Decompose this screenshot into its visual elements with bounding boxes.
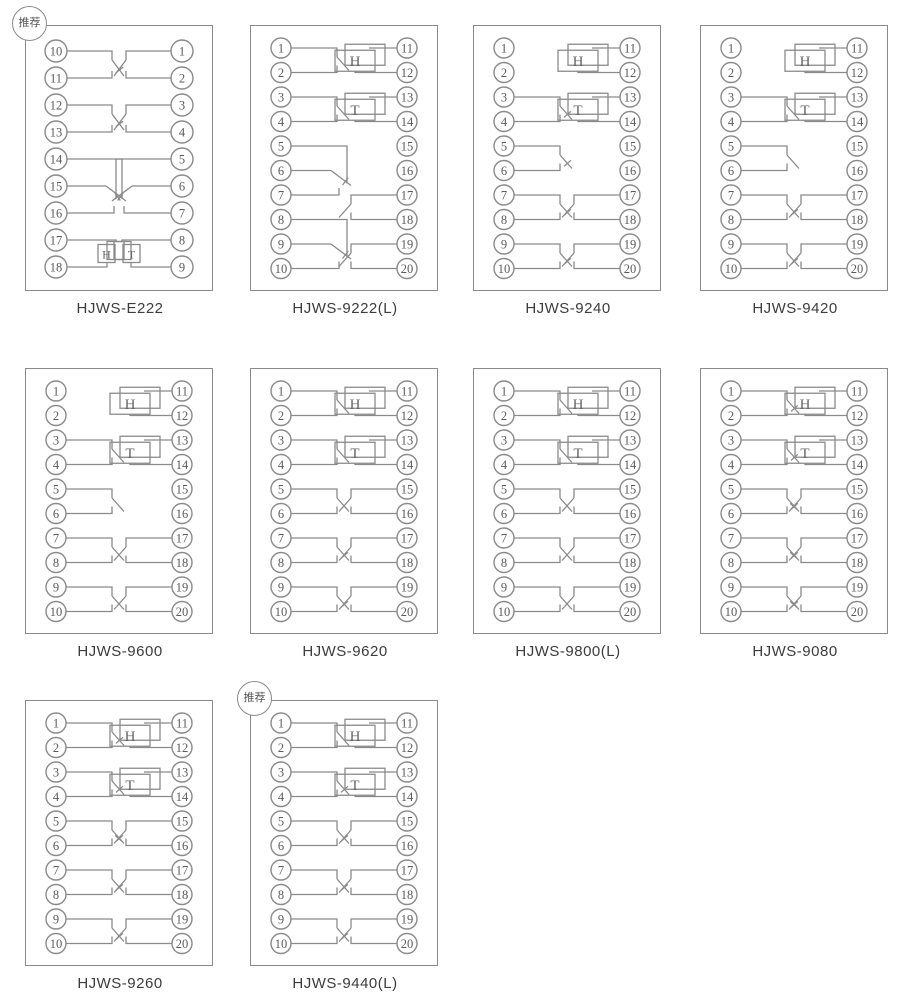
- terminals: 1234567891011121314151617181920: [46, 713, 192, 954]
- diagram-box: HT1234567891011121314151617181920: [25, 368, 213, 634]
- box-letter: T: [800, 446, 809, 462]
- terminal-5: 5: [721, 136, 741, 156]
- terminal-9: 9: [494, 577, 514, 597]
- svg-text:8: 8: [728, 213, 734, 227]
- terminal-4: 4: [721, 112, 741, 132]
- contact-no: [741, 146, 799, 171]
- svg-text:7: 7: [728, 189, 734, 203]
- terminals: 1234567891011121314151617181920: [494, 381, 640, 622]
- signal-box-h: H: [335, 44, 397, 72]
- terminal-3: 3: [271, 430, 291, 450]
- svg-text:20: 20: [624, 605, 637, 619]
- contact-no: [66, 489, 124, 514]
- svg-text:6: 6: [53, 839, 59, 853]
- svg-text:6: 6: [53, 507, 59, 521]
- terminal-15: 15: [620, 136, 640, 156]
- terminal-5: 5: [721, 479, 741, 499]
- contact-nc: [66, 723, 124, 748]
- terminals: 1234567891011121314151617181920: [271, 713, 417, 954]
- terminal-12: 12: [397, 63, 417, 83]
- terminal-4: 4: [494, 112, 514, 132]
- terminal-8: 8: [271, 210, 291, 230]
- svg-text:20: 20: [624, 262, 637, 276]
- terminal-10: 10: [271, 602, 291, 622]
- changeover-contact: [291, 220, 351, 269]
- terminal-20: 20: [172, 934, 192, 954]
- svg-text:20: 20: [401, 937, 414, 951]
- terminal-12: 12: [620, 63, 640, 83]
- svg-text:12: 12: [50, 99, 63, 113]
- recommended-badge: 推荐: [237, 681, 272, 716]
- svg-text:17: 17: [176, 532, 189, 546]
- terminal-14: 14: [397, 455, 417, 475]
- svg-text:8: 8: [728, 556, 734, 570]
- svg-text:8: 8: [53, 888, 59, 902]
- svg-text:3: 3: [501, 91, 507, 105]
- svg-text:15: 15: [624, 140, 637, 154]
- box-letter: H: [125, 729, 136, 745]
- terminal-14: 14: [397, 787, 417, 807]
- terminal-20: 20: [620, 259, 640, 279]
- svg-text:20: 20: [401, 605, 414, 619]
- relay-diagram-cell: HT1234567891011121314151617181920HJWS-92…: [25, 700, 215, 992]
- svg-text:9: 9: [53, 581, 59, 595]
- wiring-diagram: HT1234567891011121314151617181920: [474, 369, 660, 633]
- terminal-3: 3: [494, 430, 514, 450]
- terminal-8: 8: [271, 553, 291, 573]
- diagram-title: HJWS-9240: [473, 300, 663, 317]
- svg-text:20: 20: [176, 605, 189, 619]
- terminal-11: 11: [620, 38, 640, 58]
- signal-box-t: T: [785, 436, 847, 464]
- terminal-3: 3: [46, 430, 66, 450]
- terminal-6: 6: [721, 504, 741, 524]
- contact-nc: [741, 440, 799, 465]
- relay-diagram-cell: 推荐HT1234567891011121314151617181920HJWS-…: [250, 700, 440, 992]
- signal-box-h: H: [785, 387, 847, 415]
- diagram-box: HT1234567891011121314151617181920: [700, 368, 888, 634]
- terminal-11: 11: [172, 381, 192, 401]
- terminal-15: 15: [847, 479, 867, 499]
- terminal-1: 1: [46, 713, 66, 733]
- terminal-18: 18: [397, 210, 417, 230]
- svg-text:16: 16: [401, 839, 414, 853]
- terminal-15: 15: [45, 175, 67, 197]
- svg-text:3: 3: [53, 434, 59, 448]
- svg-text:10: 10: [498, 262, 511, 276]
- svg-text:3: 3: [53, 766, 59, 780]
- svg-text:17: 17: [624, 189, 637, 203]
- signal-box-h: H: [558, 387, 620, 415]
- svg-text:18: 18: [851, 556, 864, 570]
- terminal-17: 17: [397, 185, 417, 205]
- signal-box-t: T: [110, 768, 172, 796]
- svg-text:1: 1: [53, 717, 59, 731]
- box-letter: H: [125, 397, 136, 413]
- terminal-11: 11: [172, 713, 192, 733]
- svg-text:3: 3: [278, 91, 284, 105]
- diagram-title: HJWS-9440(L): [250, 975, 440, 992]
- svg-text:20: 20: [176, 937, 189, 951]
- box-letter: T: [125, 778, 134, 794]
- svg-text:5: 5: [728, 483, 734, 497]
- svg-text:19: 19: [851, 238, 864, 252]
- terminal-8: 8: [494, 553, 514, 573]
- box-letter: H: [800, 397, 811, 413]
- terminal-20: 20: [847, 259, 867, 279]
- changeover-contact: [112, 159, 172, 213]
- terminal-10: 10: [46, 934, 66, 954]
- terminal-16: 16: [45, 202, 67, 224]
- signal-box-t: T: [558, 436, 620, 464]
- svg-text:18: 18: [401, 556, 414, 570]
- svg-text:19: 19: [176, 581, 189, 595]
- wiring-diagram: HT1234567891011121314151617181920: [251, 701, 437, 965]
- terminal-19: 19: [620, 234, 640, 254]
- terminal-17: 17: [847, 185, 867, 205]
- terminal-4: 4: [46, 787, 66, 807]
- terminal-9: 9: [721, 234, 741, 254]
- terminal-9: 9: [46, 577, 66, 597]
- svg-text:15: 15: [50, 180, 63, 194]
- signal-box-small-h: H: [66, 240, 124, 267]
- terminal-16: 16: [397, 161, 417, 181]
- terminal-12: 12: [620, 406, 640, 426]
- relay-diagram-cell: HT1234567891011121314151617181920HJWS-94…: [700, 25, 890, 317]
- relay-diagram-cell: HT1234567891011121314151617181920HJWS-92…: [250, 25, 440, 317]
- svg-text:2: 2: [278, 409, 284, 423]
- terminal-8: 8: [171, 229, 193, 251]
- svg-text:14: 14: [851, 458, 864, 472]
- terminal-1: 1: [494, 38, 514, 58]
- diagram-title: HJWS-9222(L): [250, 300, 440, 317]
- terminal-14: 14: [172, 455, 192, 475]
- terminal-19: 19: [172, 909, 192, 929]
- svg-text:16: 16: [176, 507, 189, 521]
- terminal-2: 2: [721, 63, 741, 83]
- svg-text:11: 11: [624, 385, 636, 399]
- svg-text:3: 3: [728, 434, 734, 448]
- svg-text:16: 16: [851, 164, 864, 178]
- terminal-19: 19: [847, 577, 867, 597]
- relay-diagram-cell: HT1234567891011121314151617181920HJWS-98…: [473, 368, 663, 660]
- terminal-16: 16: [847, 504, 867, 524]
- svg-text:17: 17: [401, 864, 414, 878]
- terminal-18: 18: [620, 553, 640, 573]
- terminal-2: 2: [271, 406, 291, 426]
- svg-text:2: 2: [278, 741, 284, 755]
- svg-text:1: 1: [179, 45, 185, 59]
- relay-diagram-cell: HT1234567891011121314151617181920HJWS-90…: [700, 368, 890, 660]
- terminal-1: 1: [494, 381, 514, 401]
- box-letter: H: [350, 54, 361, 70]
- terminal-17: 17: [172, 860, 192, 880]
- terminal-13: 13: [620, 430, 640, 450]
- svg-text:12: 12: [624, 409, 637, 423]
- terminal-3: 3: [721, 430, 741, 450]
- svg-text:15: 15: [851, 140, 864, 154]
- svg-text:5: 5: [53, 815, 59, 829]
- svg-text:4: 4: [728, 458, 735, 472]
- svg-text:11: 11: [851, 42, 863, 56]
- terminal-20: 20: [847, 602, 867, 622]
- terminal-16: 16: [847, 161, 867, 181]
- terminal-9: 9: [494, 234, 514, 254]
- terminal-13: 13: [847, 430, 867, 450]
- contact-no: [291, 440, 349, 465]
- terminal-7: 7: [271, 860, 291, 880]
- svg-text:7: 7: [53, 864, 59, 878]
- diagram-box: HT1234567891011121314151617181920: [250, 368, 438, 634]
- svg-text:5: 5: [278, 815, 284, 829]
- svg-text:15: 15: [176, 815, 189, 829]
- svg-text:5: 5: [501, 140, 507, 154]
- terminal-20: 20: [397, 934, 417, 954]
- svg-text:16: 16: [176, 839, 189, 853]
- svg-text:9: 9: [53, 913, 59, 927]
- svg-text:1: 1: [53, 385, 59, 399]
- terminal-4: 4: [271, 112, 291, 132]
- contact-nc: [514, 146, 572, 171]
- svg-text:10: 10: [50, 45, 63, 59]
- svg-text:10: 10: [275, 937, 288, 951]
- terminal-7: 7: [721, 528, 741, 548]
- box-letter: T: [125, 446, 134, 462]
- svg-text:2: 2: [501, 409, 507, 423]
- terminal-1: 1: [721, 381, 741, 401]
- signal-box-h: H: [110, 387, 172, 415]
- svg-text:9: 9: [728, 238, 734, 252]
- svg-text:1: 1: [278, 385, 284, 399]
- svg-text:13: 13: [176, 766, 189, 780]
- svg-text:17: 17: [50, 234, 63, 248]
- terminal-1: 1: [46, 381, 66, 401]
- svg-text:4: 4: [278, 790, 285, 804]
- contact-no: [291, 48, 349, 73]
- terminal-8: 8: [271, 885, 291, 905]
- terminal-2: 2: [46, 738, 66, 758]
- terminal-12: 12: [172, 406, 192, 426]
- terminal-3: 3: [171, 94, 193, 116]
- terminal-5: 5: [46, 479, 66, 499]
- terminal-15: 15: [397, 479, 417, 499]
- svg-text:12: 12: [851, 409, 864, 423]
- diagram-title: HJWS-9080: [700, 643, 890, 660]
- terminal-2: 2: [271, 738, 291, 758]
- terminal-18: 18: [172, 553, 192, 573]
- terminal-17: 17: [45, 229, 67, 251]
- svg-text:17: 17: [624, 532, 637, 546]
- signal-box-small-t: T: [114, 240, 172, 267]
- svg-text:3: 3: [278, 434, 284, 448]
- relay-diagram-cell: HT1234567891011121314151617181920HJWS-96…: [25, 368, 215, 660]
- terminal-20: 20: [172, 602, 192, 622]
- svg-text:11: 11: [401, 42, 413, 56]
- terminal-14: 14: [847, 112, 867, 132]
- terminal-3: 3: [271, 762, 291, 782]
- svg-text:12: 12: [176, 741, 189, 755]
- terminal-14: 14: [620, 112, 640, 132]
- terminal-20: 20: [397, 259, 417, 279]
- svg-text:17: 17: [851, 532, 864, 546]
- diagram-title: HJWS-9600: [25, 643, 215, 660]
- svg-text:18: 18: [176, 556, 189, 570]
- terminal-4: 4: [494, 455, 514, 475]
- terminal-17: 17: [847, 528, 867, 548]
- terminal-10: 10: [271, 934, 291, 954]
- svg-text:20: 20: [401, 262, 414, 276]
- terminal-18: 18: [397, 553, 417, 573]
- terminal-13: 13: [620, 87, 640, 107]
- svg-text:14: 14: [401, 115, 414, 129]
- svg-text:16: 16: [851, 507, 864, 521]
- svg-text:8: 8: [501, 556, 507, 570]
- svg-text:13: 13: [401, 434, 414, 448]
- svg-text:8: 8: [278, 888, 284, 902]
- signal-box-t: T: [335, 436, 397, 464]
- terminal-2: 2: [271, 63, 291, 83]
- terminal-19: 19: [397, 577, 417, 597]
- terminal-18: 18: [45, 256, 67, 278]
- svg-text:5: 5: [278, 140, 284, 154]
- box-letter: T: [350, 103, 359, 119]
- terminal-3: 3: [721, 87, 741, 107]
- svg-text:9: 9: [278, 238, 284, 252]
- terminal-13: 13: [45, 121, 67, 143]
- terminal-2: 2: [494, 406, 514, 426]
- svg-text:7: 7: [728, 532, 734, 546]
- terminal-13: 13: [397, 762, 417, 782]
- terminal-17: 17: [620, 528, 640, 548]
- svg-text:14: 14: [176, 790, 189, 804]
- signal-box-h: H: [335, 387, 397, 415]
- terminal-15: 15: [172, 811, 192, 831]
- terminal-4: 4: [271, 455, 291, 475]
- svg-text:1: 1: [501, 385, 507, 399]
- svg-text:7: 7: [278, 532, 284, 546]
- terminals: 1234567891011121314151617181920: [494, 38, 640, 279]
- terminal-14: 14: [847, 455, 867, 475]
- terminal-5: 5: [271, 479, 291, 499]
- wiring-diagram: HT1234567891011121314151617181920: [701, 369, 887, 633]
- svg-text:8: 8: [53, 556, 59, 570]
- svg-text:10: 10: [50, 605, 63, 619]
- svg-text:15: 15: [401, 140, 414, 154]
- svg-text:4: 4: [501, 115, 508, 129]
- svg-text:7: 7: [53, 532, 59, 546]
- terminal-13: 13: [172, 430, 192, 450]
- contact-no: [514, 391, 572, 416]
- svg-text:3: 3: [278, 766, 284, 780]
- diagram-box: HT1234567891011121314151617181920: [473, 368, 661, 634]
- wiring-diagram: HT1234567891011121314151617181920: [251, 369, 437, 633]
- svg-text:10: 10: [50, 937, 63, 951]
- terminal-5: 5: [271, 811, 291, 831]
- terminal-16: 16: [620, 504, 640, 524]
- terminal-17: 17: [172, 528, 192, 548]
- terminal-6: 6: [494, 504, 514, 524]
- svg-text:6: 6: [501, 164, 507, 178]
- terminal-9: 9: [46, 909, 66, 929]
- box-letter: H: [573, 397, 584, 413]
- terminal-10: 10: [46, 602, 66, 622]
- terminal-13: 13: [397, 430, 417, 450]
- svg-text:14: 14: [851, 115, 864, 129]
- svg-text:18: 18: [851, 213, 864, 227]
- terminal-14: 14: [172, 787, 192, 807]
- svg-text:13: 13: [401, 766, 414, 780]
- relay-diagram-cell: HT1234567891011121314151617181920HJWS-96…: [250, 368, 440, 660]
- svg-text:11: 11: [851, 385, 863, 399]
- svg-text:7: 7: [501, 532, 507, 546]
- terminal-11: 11: [45, 67, 67, 89]
- svg-text:10: 10: [275, 605, 288, 619]
- svg-text:10: 10: [498, 605, 511, 619]
- svg-text:11: 11: [624, 42, 636, 56]
- signal-box-h: H: [785, 44, 847, 72]
- diagram-title: HJWS-E222: [25, 300, 215, 317]
- box-letter: H: [350, 729, 361, 745]
- terminal-7: 7: [271, 185, 291, 205]
- terminals: 1234567891011121314151617181920: [271, 38, 417, 279]
- svg-text:1: 1: [728, 42, 734, 56]
- terminal-15: 15: [847, 136, 867, 156]
- terminal-20: 20: [397, 602, 417, 622]
- svg-text:16: 16: [624, 507, 637, 521]
- terminal-2: 2: [171, 67, 193, 89]
- box-letter: H: [800, 54, 811, 70]
- svg-text:19: 19: [624, 238, 637, 252]
- terminal-6: 6: [721, 161, 741, 181]
- terminal-3: 3: [46, 762, 66, 782]
- terminal-18: 18: [397, 885, 417, 905]
- contact-no: [291, 391, 349, 416]
- svg-text:18: 18: [624, 213, 637, 227]
- svg-text:7: 7: [501, 189, 507, 203]
- svg-text:14: 14: [50, 153, 63, 167]
- terminal-8: 8: [46, 553, 66, 573]
- terminal-19: 19: [620, 577, 640, 597]
- svg-text:12: 12: [624, 66, 637, 80]
- svg-text:6: 6: [278, 839, 284, 853]
- contact-no: [741, 97, 799, 122]
- svg-text:14: 14: [401, 790, 414, 804]
- terminal-18: 18: [847, 553, 867, 573]
- terminal-12: 12: [172, 738, 192, 758]
- contact-no: [339, 195, 397, 220]
- terminal-8: 8: [46, 885, 66, 905]
- svg-text:2: 2: [278, 66, 284, 80]
- signal-box-t: T: [558, 93, 620, 121]
- terminal-4: 4: [721, 455, 741, 475]
- terminal-8: 8: [721, 553, 741, 573]
- terminal-13: 13: [847, 87, 867, 107]
- diagram-title: HJWS-9620: [250, 643, 440, 660]
- svg-text:8: 8: [278, 213, 284, 227]
- terminal-7: 7: [494, 528, 514, 548]
- svg-text:2: 2: [728, 409, 734, 423]
- svg-text:18: 18: [176, 888, 189, 902]
- svg-text:1: 1: [278, 717, 284, 731]
- terminal-12: 12: [397, 406, 417, 426]
- svg-text:16: 16: [401, 507, 414, 521]
- svg-text:11: 11: [176, 717, 188, 731]
- signal-box-t: T: [335, 93, 397, 121]
- terminal-9: 9: [271, 909, 291, 929]
- terminal-15: 15: [620, 479, 640, 499]
- terminal-17: 17: [620, 185, 640, 205]
- terminal-4: 4: [271, 787, 291, 807]
